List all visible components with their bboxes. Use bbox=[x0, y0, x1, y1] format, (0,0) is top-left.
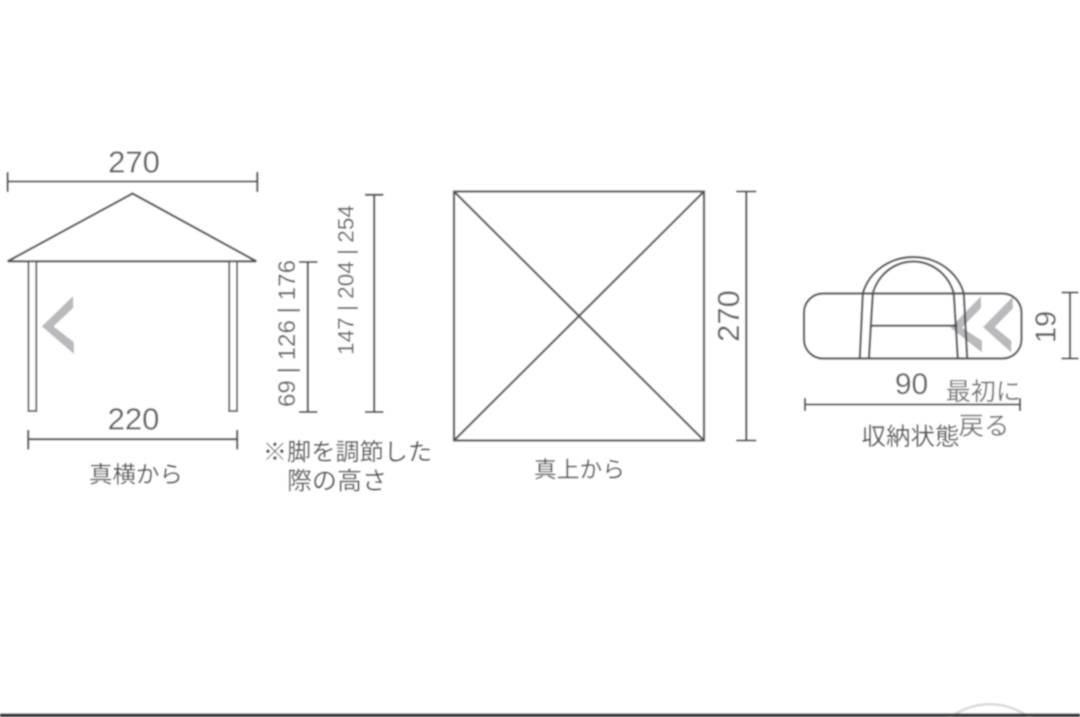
svg-text:220: 220 bbox=[108, 401, 160, 436]
svg-text:69 | 126 | 176: 69 | 126 | 176 bbox=[274, 260, 301, 407]
svg-text:270: 270 bbox=[711, 290, 746, 342]
svg-text:90: 90 bbox=[895, 368, 928, 401]
svg-text:147 | 204 | 254: 147 | 204 | 254 bbox=[333, 205, 358, 355]
svg-text:19: 19 bbox=[1030, 311, 1062, 343]
svg-text:270: 270 bbox=[108, 145, 160, 180]
